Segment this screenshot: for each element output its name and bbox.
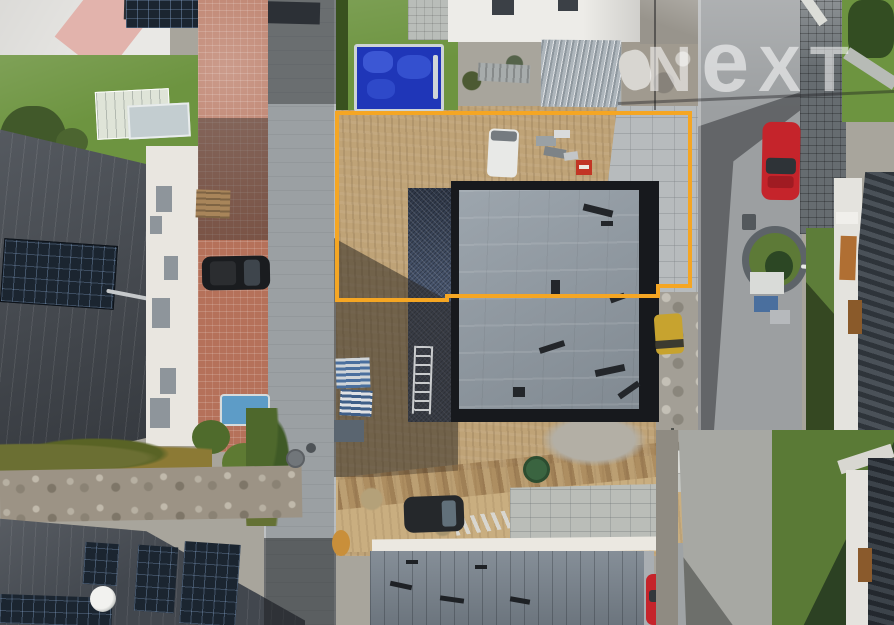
- street-shadow-bottom: [264, 538, 336, 625]
- marker-red: [576, 160, 592, 175]
- pallet-gray: [770, 310, 790, 324]
- watermark-e: e: [701, 14, 758, 110]
- snow-guard: [475, 565, 487, 569]
- hrf-roof: [858, 172, 894, 438]
- truck-white: [487, 128, 519, 178]
- watermark: N ^ e XT: [646, 8, 894, 116]
- pool: [354, 44, 444, 112]
- window: [152, 298, 170, 328]
- window: [164, 256, 178, 280]
- photo-canvas: N ^ e XT: [0, 0, 894, 625]
- building-top-white: [448, 0, 640, 42]
- pool-water-light: [397, 55, 431, 79]
- pallets-driveway: [196, 189, 231, 218]
- house-bottom-right: [838, 452, 894, 625]
- pool-water-light: [367, 79, 395, 99]
- stone-wall-strip: [0, 465, 302, 522]
- formwork-piece: [554, 130, 570, 138]
- hrf-balcony: [836, 212, 858, 224]
- pallets-blue-2: [339, 389, 372, 417]
- roof-mark: [551, 280, 560, 294]
- conveyor-gray: [478, 63, 531, 84]
- orange-bush: [332, 530, 350, 556]
- well-cover-green: [523, 456, 550, 483]
- shed-ribbed: [541, 40, 622, 108]
- watermark-e-wrap: ^ e: [701, 8, 758, 116]
- window: [160, 368, 176, 394]
- car-red-windshield: [766, 158, 796, 175]
- watermark-n: N: [646, 15, 701, 123]
- pallet-white: [750, 272, 784, 294]
- hrf-deck-1: [839, 236, 857, 281]
- solar-array-bl-2: [134, 545, 179, 614]
- window: [150, 216, 162, 234]
- truck-cab: [491, 130, 517, 141]
- solar-array-left-1: [0, 238, 118, 310]
- excavator-track: [655, 339, 683, 349]
- hrf-deck-2: [848, 300, 862, 334]
- manhole-1: [286, 449, 305, 468]
- satellite-dish: [90, 586, 116, 612]
- roof-mark: [601, 221, 613, 226]
- snow-guard: [510, 596, 531, 604]
- pallets-blue-3: [334, 420, 364, 442]
- greenhouse: [127, 102, 191, 139]
- manhole-2: [306, 443, 316, 453]
- watermark-xt: XT: [758, 15, 858, 123]
- pool-rail: [433, 55, 438, 99]
- driveway-shadow: [198, 118, 268, 240]
- marker-stripe: [579, 165, 589, 169]
- suv-dark-windshield: [442, 500, 457, 526]
- window: [156, 186, 172, 212]
- hbr-roof: [868, 458, 894, 625]
- roof-mark: [513, 387, 525, 397]
- skylight: [558, 0, 578, 11]
- pool-water-light: [363, 51, 393, 73]
- formwork-piece: [536, 136, 556, 146]
- building-main: [451, 181, 659, 422]
- snow-guard: [440, 595, 464, 603]
- bin-gray: [742, 214, 756, 230]
- suv-black: [202, 255, 271, 290]
- solar-array-bl-3: [179, 541, 241, 625]
- suv-dark-bottom: [403, 495, 464, 533]
- snow-guard: [406, 560, 418, 564]
- hbr-wood: [858, 548, 872, 582]
- pallets-blue-1: [335, 357, 370, 388]
- snow-guard: [390, 581, 413, 590]
- roof-bottom-center: [370, 551, 654, 625]
- house-right-far: [832, 172, 894, 438]
- suv-black-windshield: [244, 260, 260, 286]
- solar-array-bl-1: [83, 542, 120, 586]
- window: [150, 398, 170, 428]
- excavator-yellow: [654, 313, 685, 355]
- car-red-right: [761, 122, 800, 201]
- gravel-strip-roadside: [656, 430, 678, 625]
- ladder: [412, 346, 433, 415]
- skylight: [492, 0, 514, 15]
- pallets-road: [750, 270, 794, 326]
- suv-black-roof: [210, 261, 236, 285]
- car-red-roof: [768, 176, 794, 188]
